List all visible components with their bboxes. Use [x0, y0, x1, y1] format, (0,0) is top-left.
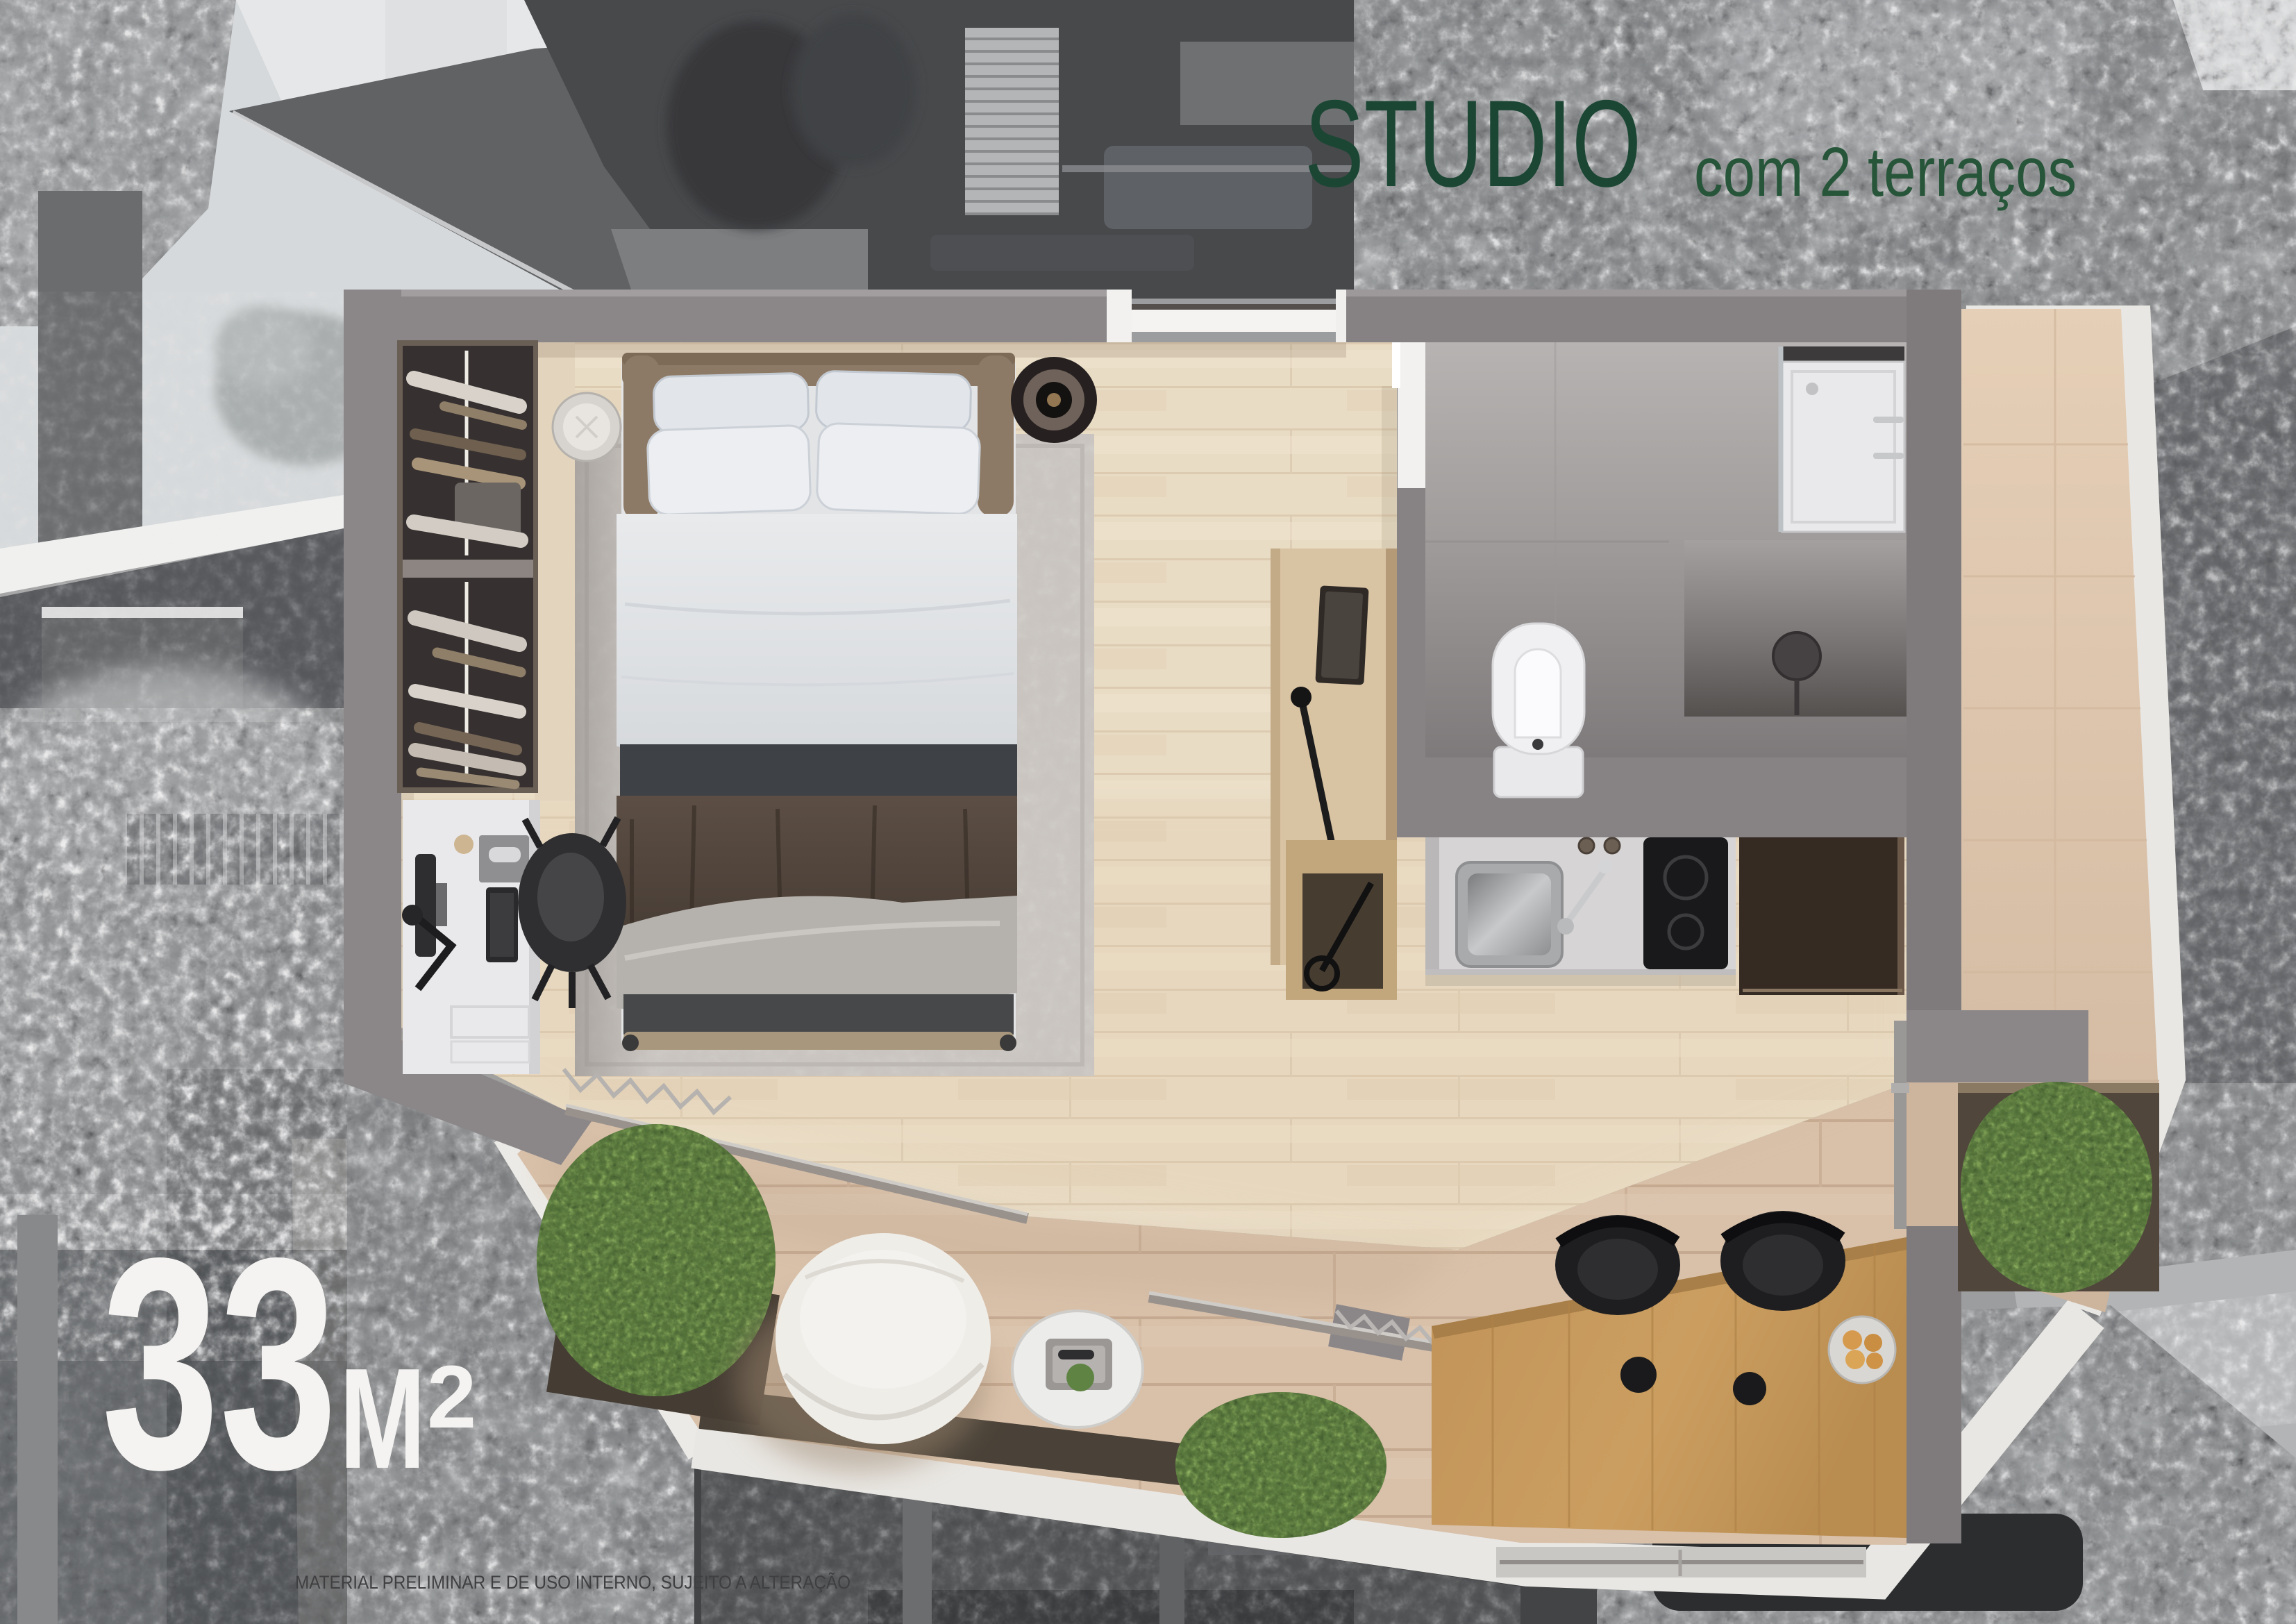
svg-text:MATERIAL PRELIMINAR E DE USO I: MATERIAL PRELIMINAR E DE USO INTERNO, SU…	[295, 1571, 850, 1593]
svg-text:STUDIO: STUDIO	[1305, 74, 1641, 212]
svg-text:2: 2	[427, 1348, 476, 1447]
svg-text:33: 33	[101, 1195, 337, 1532]
svg-text:M: M	[340, 1339, 426, 1498]
svg-text:com 2 terraços: com 2 terraços	[1694, 133, 2077, 211]
